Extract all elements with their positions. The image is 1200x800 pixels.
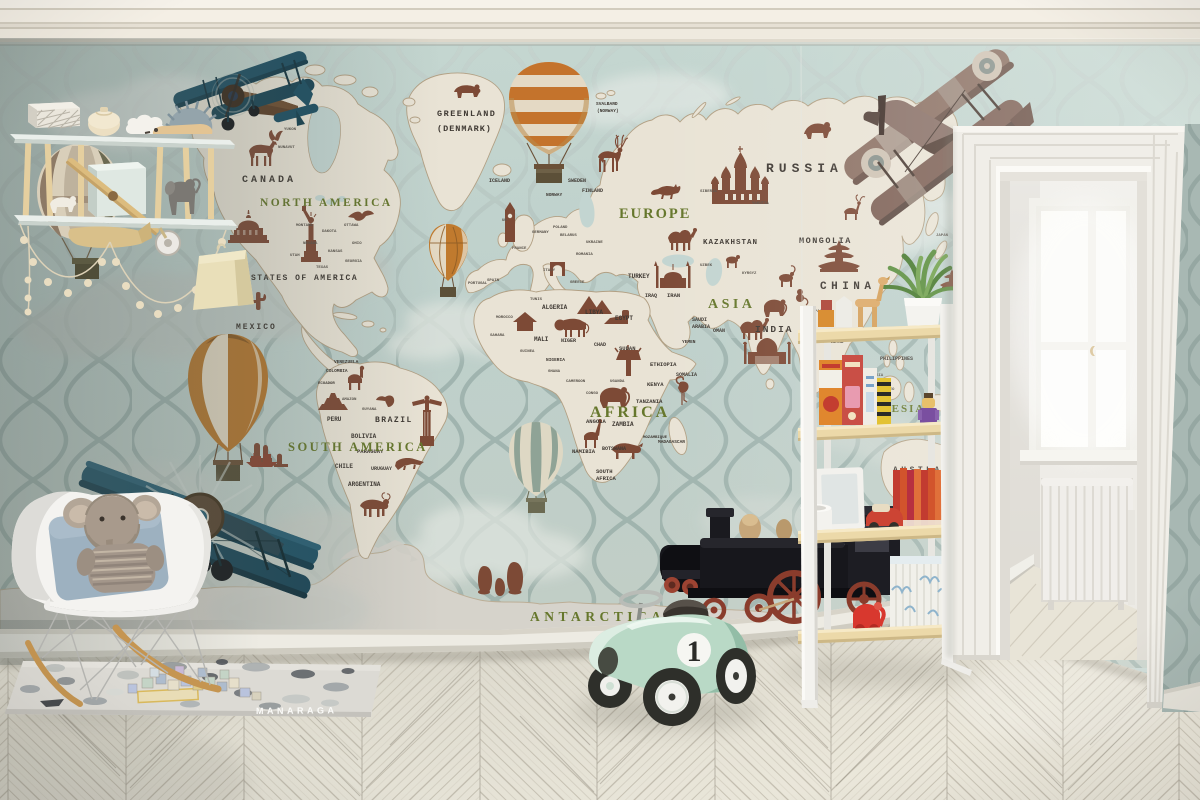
svg-text:CONGO: CONGO xyxy=(586,392,599,396)
svg-text:UGANDA: UGANDA xyxy=(610,380,625,384)
svg-text:ZAMBIA: ZAMBIA xyxy=(612,421,634,428)
svg-text:(DENMARK): (DENMARK) xyxy=(437,124,492,134)
svg-text:MOROCCO: MOROCCO xyxy=(496,316,513,320)
svg-text:FRANCE: FRANCE xyxy=(512,247,527,251)
svg-text:NAMIBIA: NAMIBIA xyxy=(572,448,596,455)
svg-text:ITALY: ITALY xyxy=(543,269,556,273)
svg-text:(NORWAY): (NORWAY) xyxy=(597,108,619,114)
svg-text:GHANA: GHANA xyxy=(548,370,561,374)
svg-text:NORWAY: NORWAY xyxy=(546,192,563,198)
svg-text:LIBYA: LIBYA xyxy=(585,309,603,316)
svg-text:MANARAGA: MANARAGA xyxy=(256,705,338,716)
svg-text:NIGER: NIGER xyxy=(561,338,576,344)
svg-text:SOUTH: SOUTH xyxy=(596,468,613,475)
svg-text:ALGERIA: ALGERIA xyxy=(542,304,568,311)
svg-text:UKRAINE: UKRAINE xyxy=(586,241,603,245)
svg-text:1: 1 xyxy=(687,635,702,668)
svg-text:SWEDEN: SWEDEN xyxy=(568,178,586,184)
svg-text:SAHARA: SAHARA xyxy=(490,334,505,338)
svg-text:BELARUS: BELARUS xyxy=(560,234,577,238)
svg-text:GREENLAND: GREENLAND xyxy=(437,109,496,119)
svg-text:GERMANY: GERMANY xyxy=(532,231,549,235)
svg-text:SPAIN: SPAIN xyxy=(487,279,500,283)
svg-text:NIGERIA: NIGERIA xyxy=(546,357,565,363)
svg-text:AFRICA: AFRICA xyxy=(596,475,617,482)
svg-text:SUDAN: SUDAN xyxy=(619,345,636,352)
svg-text:ICELAND: ICELAND xyxy=(489,178,510,184)
svg-text:BOTSWANA: BOTSWANA xyxy=(602,446,626,452)
svg-text:EGYPT: EGYPT xyxy=(615,315,633,322)
svg-text:TURKEY: TURKEY xyxy=(628,273,650,280)
svg-text:MALI: MALI xyxy=(534,336,549,343)
svg-text:ROMANIA: ROMANIA xyxy=(576,253,593,257)
svg-text:UK: UK xyxy=(502,219,507,223)
svg-text:POLAND: POLAND xyxy=(553,226,568,230)
svg-text:TUNIS: TUNIS xyxy=(530,298,543,302)
svg-text:CAMEROON: CAMEROON xyxy=(566,380,586,384)
svg-text:GUINEA: GUINEA xyxy=(520,350,535,354)
svg-text:PORTUGAL: PORTUGAL xyxy=(468,282,488,286)
svg-text:SVALBARD: SVALBARD xyxy=(596,101,618,107)
svg-text:CHAD: CHAD xyxy=(594,342,606,348)
svg-text:GREECE: GREECE xyxy=(570,281,585,285)
svg-text:FINLAND: FINLAND xyxy=(582,188,603,194)
